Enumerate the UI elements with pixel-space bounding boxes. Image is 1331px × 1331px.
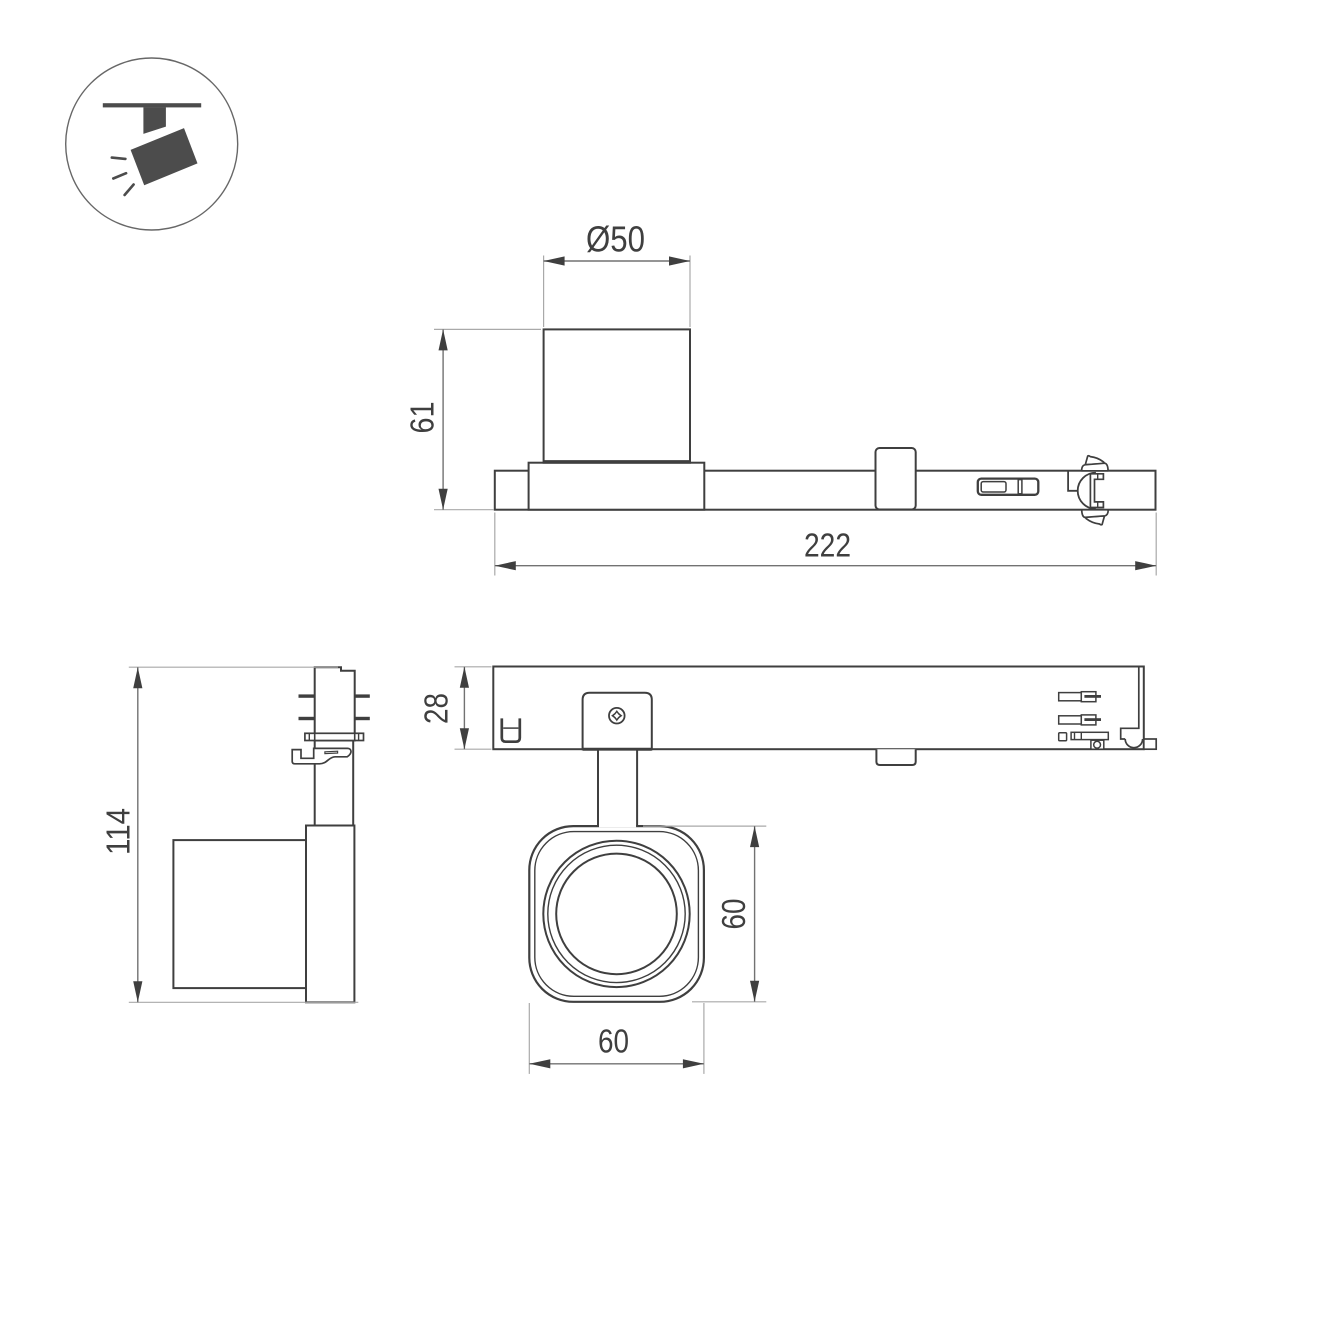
svg-text:60: 60 (715, 899, 752, 930)
svg-text:61: 61 (404, 402, 441, 434)
svg-text:28: 28 (418, 693, 455, 724)
svg-text:114: 114 (100, 808, 137, 855)
svg-text:222: 222 (804, 527, 851, 564)
svg-text:60: 60 (598, 1023, 629, 1060)
svg-text:Ø50: Ø50 (586, 219, 645, 260)
